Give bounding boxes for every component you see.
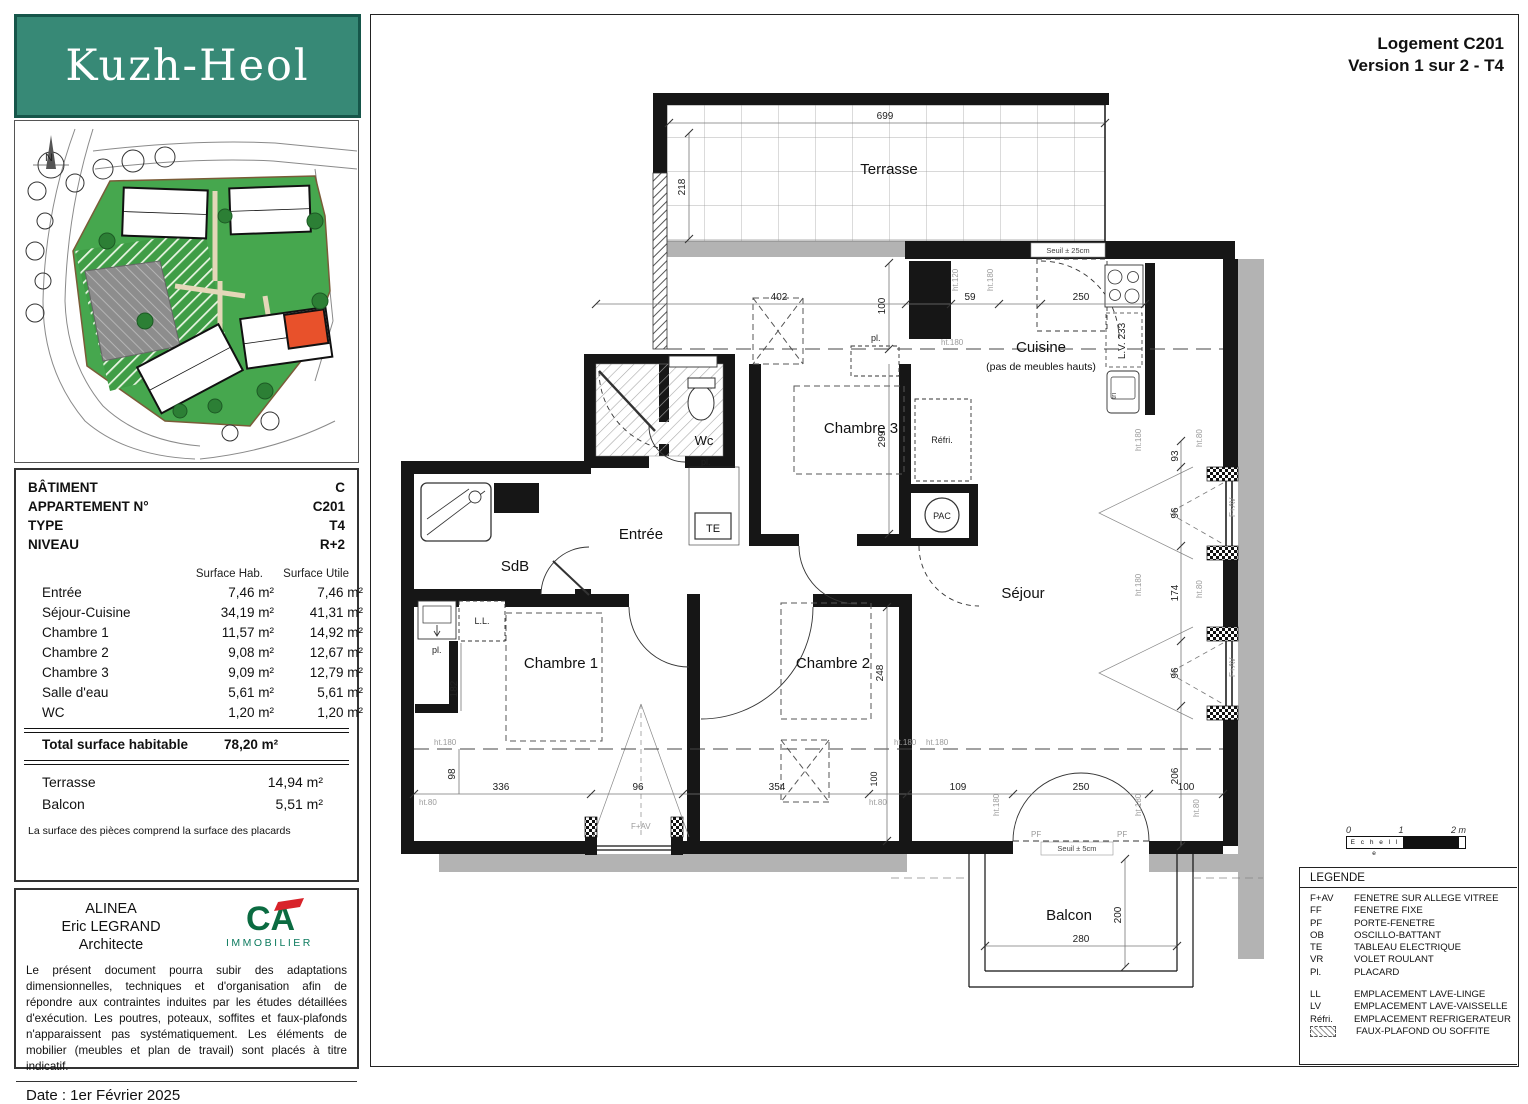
height-annotations: ht.180 ht.180 ht.180 ht.80 ht.80 ht.180 … — [419, 268, 1237, 839]
room-label-wc: Wc — [695, 433, 714, 448]
svg-text:F+AV: F+AV — [1228, 657, 1237, 677]
room-label-chambre3: Chambre 3 — [824, 420, 898, 437]
svg-text:ht.180: ht.180 — [1134, 793, 1143, 816]
svg-text:N: N — [45, 152, 53, 164]
label-te: TE — [706, 523, 720, 535]
svg-text:IMMOBILIER: IMMOBILIER — [226, 937, 313, 949]
room-label-chambre1: Chambre 1 — [524, 655, 598, 672]
svg-text:100: 100 — [869, 771, 879, 786]
total-row: Total surface habitable78,20 m² — [16, 733, 357, 754]
svg-text:96: 96 — [1170, 507, 1181, 519]
label-placard: pl. — [701, 457, 711, 467]
legend-title: LEGENDE — [1300, 868, 1517, 888]
label-placard: pl. — [432, 645, 442, 655]
developer-logo-text: Kuzh-Heol — [65, 41, 309, 91]
svg-text:ht.120: ht.120 — [951, 268, 960, 291]
svg-text:218: 218 — [677, 178, 688, 195]
svg-text:ht.180: ht.180 — [1134, 573, 1143, 596]
walls — [401, 241, 1238, 855]
svg-text:250: 250 — [1073, 782, 1090, 793]
svg-text:ht.80: ht.80 — [869, 798, 887, 807]
svg-text:280: 280 — [1073, 934, 1090, 945]
annex-row: Balcon5,51 m² — [16, 793, 357, 815]
surface-note: La surface des pièces comprend la surfac… — [16, 815, 357, 837]
architect-panel: ALINEA Eric LEGRAND Architecte CA IMMOBI… — [14, 888, 359, 1069]
svg-text:182: 182 — [449, 680, 460, 697]
table-row: WC1,20 m²1,20 m² — [16, 702, 357, 722]
thresholds: Seuil ± 25cm Seuil ± 5cm — [1031, 243, 1113, 855]
svg-text:174: 174 — [1170, 584, 1181, 601]
developer-logo: Kuzh-Heol — [14, 14, 361, 118]
svg-text:ht.180: ht.180 — [1134, 428, 1143, 451]
svg-text:ht.80: ht.80 — [1195, 580, 1204, 598]
svg-text:L.V. 233: L.V. 233 — [1117, 322, 1128, 359]
info-row: NIVEAUR+2 — [16, 535, 357, 554]
scale-echelle-label: E c h e l l e — [1347, 837, 1403, 848]
room-label-balcon: Balcon — [1046, 907, 1092, 924]
svg-text:100: 100 — [1178, 782, 1195, 793]
legend-item: VRVOLET ROULANT — [1310, 954, 1517, 966]
disclaimer-text: Le présent document pourra subir des ada… — [16, 955, 357, 1075]
svg-text:ht.80: ht.80 — [419, 798, 437, 807]
legend-item: FFFENETRE FIXE — [1310, 905, 1517, 917]
apartment-info-panel: BÂTIMENTC APPARTEMENT N°C201 TYPET4 NIVE… — [14, 468, 359, 882]
table-row: Entrée7,46 m²7,46 m² — [16, 582, 357, 602]
legend-item-soffite: FAUX-PLAFOND OU SOFFITE — [1310, 1026, 1517, 1038]
legend-item: TETABLEAU ELECTRIQUE — [1310, 942, 1517, 954]
svg-text:Seuil ± 5cm: Seuil ± 5cm — [1057, 844, 1096, 853]
svg-text:109: 109 — [950, 782, 967, 793]
svg-text:98: 98 — [447, 768, 458, 780]
table-row: Chambre 39,09 m²12,79 m² — [16, 662, 357, 682]
architect-names: ALINEA Eric LEGRAND Architecte — [16, 900, 206, 954]
svg-text:PF: PF — [1031, 830, 1041, 839]
svg-text:250: 250 — [1073, 292, 1090, 303]
soffite-hatch-swatch — [1310, 1026, 1336, 1037]
svg-text:ht.80: ht.80 — [1195, 429, 1204, 447]
info-row: TYPET4 — [16, 516, 357, 535]
legend-item: Pl.PLACARD — [1310, 967, 1517, 979]
svg-text:Seuil ± 25cm: Seuil ± 25cm — [1046, 246, 1089, 255]
svg-text:699: 699 — [877, 111, 894, 122]
svg-text:100: 100 — [877, 297, 888, 314]
room-label-terrasse: Terrasse — [860, 161, 918, 178]
room-label-entree: Entrée — [619, 526, 663, 543]
surface-table-header: Surface Hab.Surface Utile — [16, 554, 357, 582]
svg-text:96: 96 — [1170, 667, 1181, 679]
svg-text:ht.180: ht.180 — [941, 338, 964, 347]
legend-item: OBOSCILLO-BATTANT — [1310, 930, 1517, 942]
label-placard: pl. — [871, 333, 881, 343]
room-label-cuisine: Cuisine — [1016, 339, 1066, 356]
surface-table: Entrée7,46 m²7,46 m² Séjour-Cuisine34,19… — [16, 582, 357, 722]
legend-item: LLEMPLACEMENT LAVE-LINGE — [1310, 989, 1517, 1001]
site-highlighted-unit — [284, 309, 328, 348]
compass-icon: N — [33, 135, 69, 178]
date-line: Date : 1er Février 2025 — [16, 1082, 357, 1104]
scale-black-segment — [1403, 837, 1459, 848]
svg-text:354: 354 — [769, 782, 786, 793]
svg-text:200: 200 — [1113, 906, 1124, 923]
plan-sheet: Logement C201 Version 1 sur 2 - T4 — [370, 14, 1519, 1067]
svg-text:248: 248 — [875, 664, 886, 681]
site-plan-drawing: N — [15, 121, 358, 462]
svg-text:F+AV: F+AV — [1228, 497, 1237, 517]
table-row: Séjour-Cuisine34,19 m²41,31 m² — [16, 602, 357, 622]
room-label-sejour: Séjour — [1001, 585, 1044, 602]
legend-item: Réfri.EMPLACEMENT REFRIGERATEUR — [1310, 1014, 1517, 1026]
svg-text:ht.180: ht.180 — [986, 268, 995, 291]
room-label-sdb: SdB — [501, 558, 529, 575]
legend-item: PFPORTE-FENETRE — [1310, 918, 1517, 930]
svg-text:ht.180: ht.180 — [434, 738, 457, 747]
ca-immobilier-logo: CA IMMOBILIER — [206, 898, 336, 955]
svg-text:59: 59 — [964, 292, 976, 303]
table-row: Chambre 111,57 m²14,92 m² — [16, 622, 357, 642]
svg-text:402: 402 — [771, 292, 788, 303]
table-row: Chambre 29,08 m²12,67 m² — [16, 642, 357, 662]
label-ll: L.L. — [474, 616, 489, 626]
legend-item: LVEMPLACEMENT LAVE-VAISSELLE — [1310, 1001, 1517, 1013]
scale-bar: 0 1 2 m E c h e l l e — [1346, 825, 1466, 849]
svg-text:96: 96 — [632, 782, 644, 793]
site-plan-map: N — [14, 120, 359, 463]
svg-text:336: 336 — [493, 782, 510, 793]
legend-panel: LEGENDE F+AVFENETRE SUR ALLEGE VITREE FF… — [1299, 867, 1517, 1065]
svg-text:ht.180: ht.180 — [894, 738, 917, 747]
info-row: BÂTIMENTC — [16, 478, 357, 497]
svg-text:ht.180: ht.180 — [992, 793, 1001, 816]
annex-row: Terrasse14,94 m² — [16, 771, 357, 793]
info-row: APPARTEMENT N°C201 — [16, 497, 357, 516]
svg-text:PF: PF — [1117, 830, 1127, 839]
label-refri: Réfri. — [931, 435, 953, 445]
legend-item: F+AVFENETRE SUR ALLEGE VITREE — [1310, 893, 1517, 905]
svg-text:ht.80: ht.80 — [1192, 799, 1201, 817]
svg-text:F+AV: F+AV — [631, 822, 651, 831]
svg-text:ht.180: ht.180 — [926, 738, 949, 747]
room-label-chambre2: Chambre 2 — [796, 655, 870, 672]
room-label-cuisine-note: (pas de meubles hauts) — [986, 361, 1096, 373]
label-pac: PAC — [933, 511, 951, 521]
height-lines — [414, 349, 1223, 749]
svg-text:93: 93 — [1170, 450, 1181, 462]
table-row: Salle d'eau5,61 m²5,61 m² — [16, 682, 357, 702]
label-tri: tri — [1109, 392, 1118, 399]
